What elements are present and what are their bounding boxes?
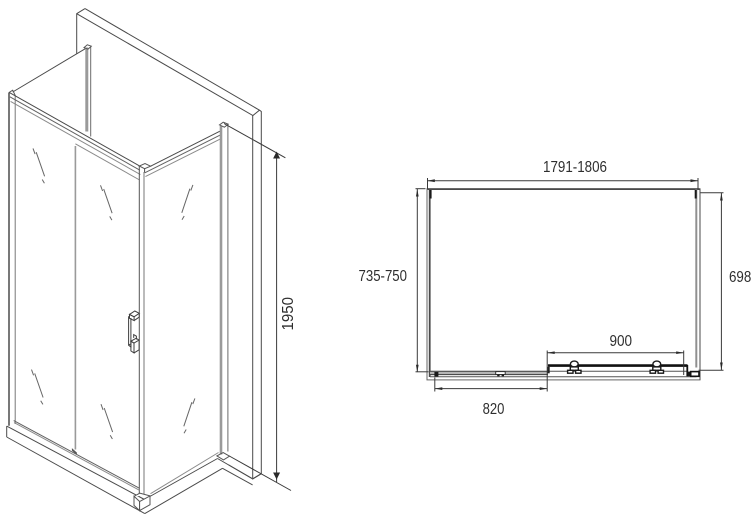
svg-text:820: 820 (483, 401, 505, 418)
svg-text:900: 900 (610, 333, 633, 350)
svg-text:698: 698 (729, 269, 751, 286)
svg-text:1950: 1950 (280, 297, 297, 331)
svg-text:1791-1806: 1791-1806 (543, 159, 607, 176)
svg-text:735-750: 735-750 (359, 268, 408, 285)
